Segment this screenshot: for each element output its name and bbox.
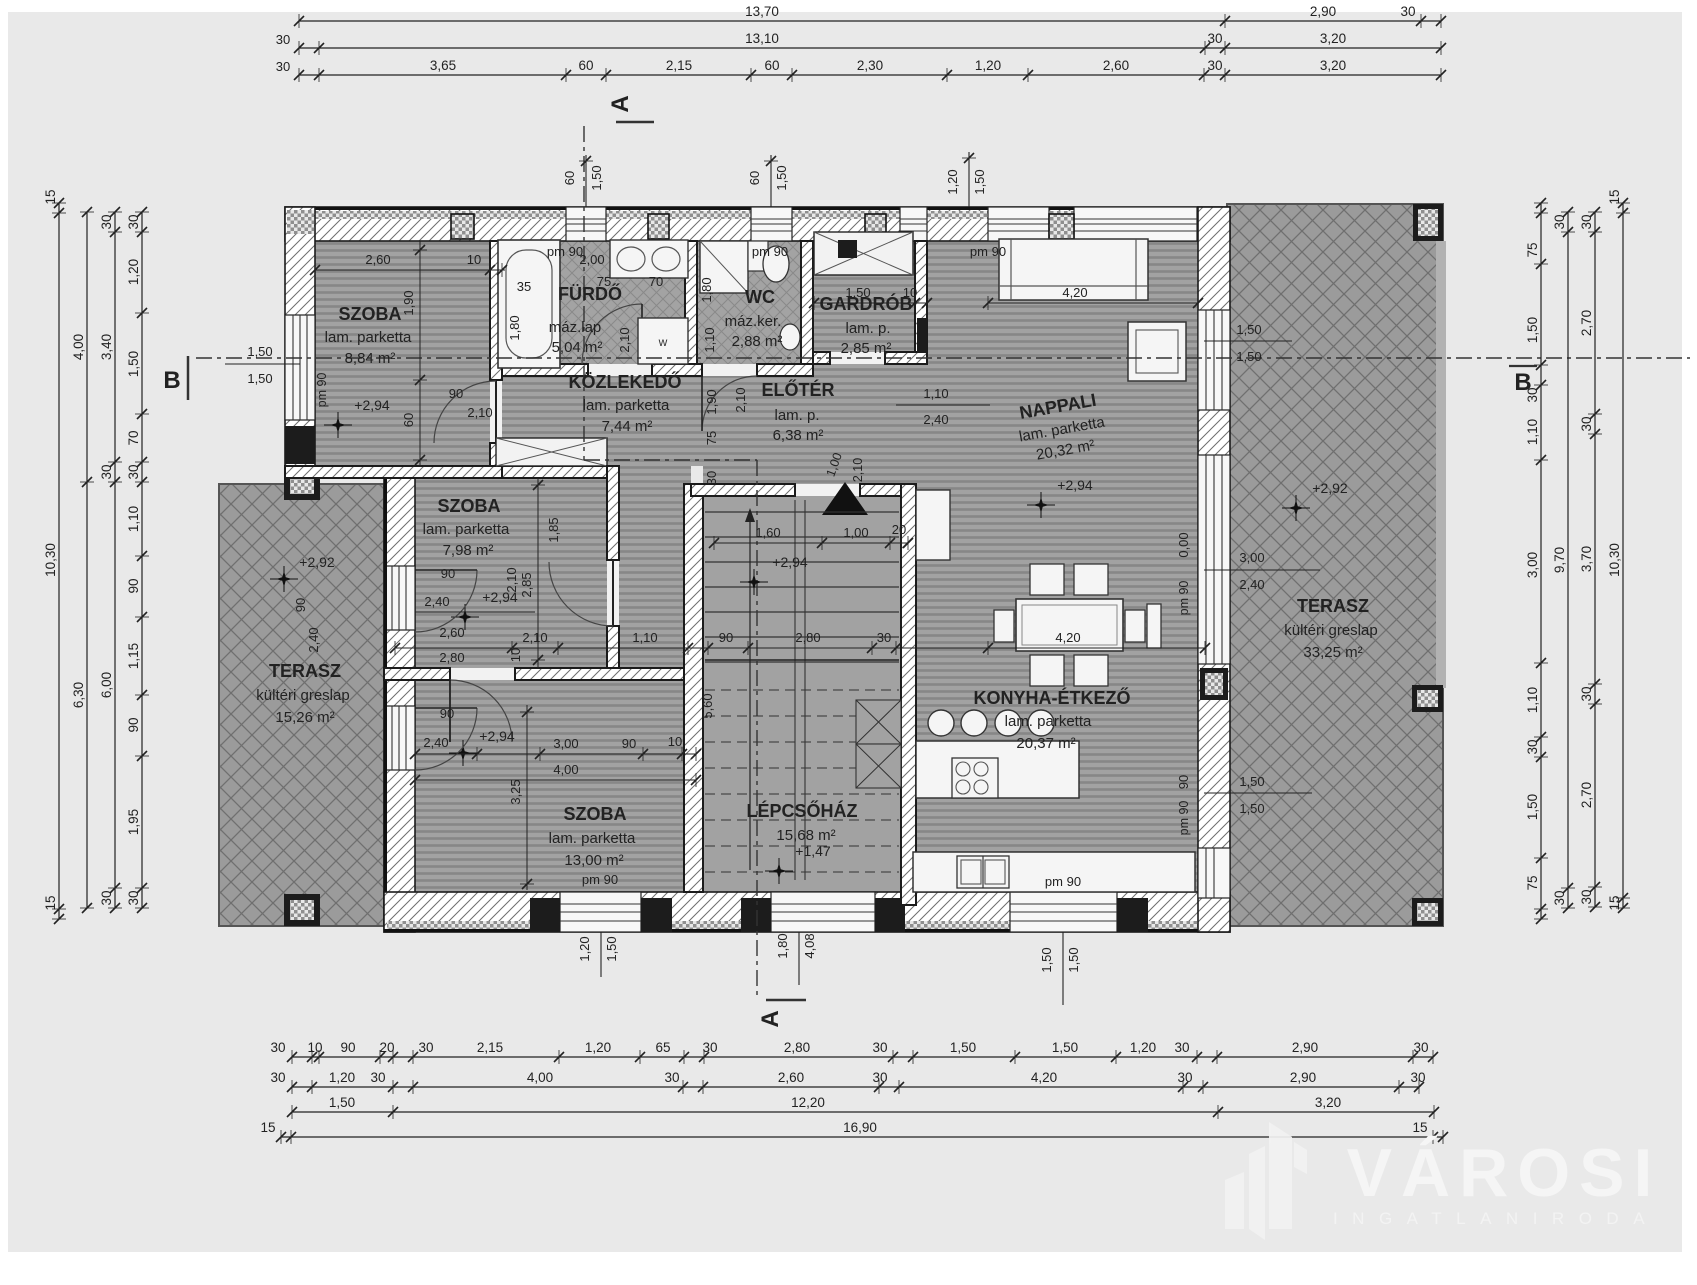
svg-text:75: 75 xyxy=(704,431,719,445)
svg-text:1,50: 1,50 xyxy=(950,1040,976,1055)
svg-text:A: A xyxy=(757,1010,784,1027)
svg-text:20: 20 xyxy=(892,522,906,537)
svg-text:2,15: 2,15 xyxy=(666,58,692,73)
svg-text:10: 10 xyxy=(467,252,481,267)
svg-text:30: 30 xyxy=(1525,739,1540,754)
svg-text:2,40: 2,40 xyxy=(423,735,448,750)
svg-text:6,38 m²: 6,38 m² xyxy=(773,427,824,444)
svg-text:INGATLANIRODA: INGATLANIRODA xyxy=(1333,1209,1659,1228)
svg-text:FÜRDŐ: FÜRDŐ xyxy=(558,283,622,304)
svg-text:pm 90: pm 90 xyxy=(1177,801,1191,836)
svg-text:3,00: 3,00 xyxy=(553,736,578,751)
svg-text:1,20: 1,20 xyxy=(126,259,141,285)
svg-text:15: 15 xyxy=(1607,895,1622,910)
svg-text:10: 10 xyxy=(668,734,682,749)
svg-text:3,00: 3,00 xyxy=(1239,550,1264,565)
svg-text:2,10: 2,10 xyxy=(522,630,547,645)
svg-text:1,50: 1,50 xyxy=(589,165,604,190)
svg-text:1,90: 1,90 xyxy=(704,389,719,414)
svg-text:1,15: 1,15 xyxy=(126,643,141,669)
svg-text:1,20: 1,20 xyxy=(975,58,1001,73)
svg-text:90: 90 xyxy=(1176,775,1191,789)
svg-text:1,50: 1,50 xyxy=(1039,947,1054,972)
svg-text:5,60: 5,60 xyxy=(700,693,715,718)
svg-text:1,80: 1,80 xyxy=(699,277,714,302)
svg-text:70: 70 xyxy=(649,274,663,289)
svg-text:1,80: 1,80 xyxy=(775,933,790,958)
svg-text:1,50: 1,50 xyxy=(1239,801,1264,816)
svg-text:75: 75 xyxy=(1525,875,1540,890)
svg-text:2,70: 2,70 xyxy=(1579,310,1594,336)
svg-text:16,90: 16,90 xyxy=(843,1120,877,1135)
svg-text:1,50: 1,50 xyxy=(1525,317,1540,343)
svg-text:30: 30 xyxy=(1177,1070,1192,1085)
svg-text:1,20: 1,20 xyxy=(577,936,592,961)
svg-text:5,04 m²: 5,04 m² xyxy=(552,339,603,356)
svg-text:1,20: 1,20 xyxy=(945,169,960,194)
svg-text:15: 15 xyxy=(1412,1120,1427,1135)
svg-text:w: w xyxy=(658,335,668,349)
svg-text:3,00: 3,00 xyxy=(1525,552,1540,578)
svg-text:WC: WC xyxy=(745,287,775,307)
svg-text:pm 90: pm 90 xyxy=(752,244,788,259)
svg-text:1,10: 1,10 xyxy=(126,506,141,532)
svg-text:10,30: 10,30 xyxy=(1607,543,1622,577)
svg-text:30: 30 xyxy=(1579,889,1594,904)
svg-text:2,85: 2,85 xyxy=(519,572,534,597)
svg-text:9,70: 9,70 xyxy=(1552,547,1567,573)
svg-text:A: A xyxy=(607,95,634,112)
svg-text:1,50: 1,50 xyxy=(1525,794,1540,820)
svg-text:10,30: 10,30 xyxy=(43,543,58,577)
svg-text:30: 30 xyxy=(1400,4,1415,19)
svg-text:pm 90: pm 90 xyxy=(547,244,583,259)
svg-text:1,10: 1,10 xyxy=(702,327,717,352)
svg-text:4,00: 4,00 xyxy=(553,762,578,777)
svg-text:lam. p.: lam. p. xyxy=(774,407,819,424)
svg-text:20,37 m²: 20,37 m² xyxy=(1016,735,1075,752)
svg-text:8,84 m²: 8,84 m² xyxy=(345,350,396,367)
svg-text:lam. parketta: lam. parketta xyxy=(1005,713,1092,730)
svg-text:+1,47: +1,47 xyxy=(795,843,831,859)
svg-text:90: 90 xyxy=(719,630,733,645)
svg-text:30: 30 xyxy=(877,630,891,645)
svg-text:7,98 m²: 7,98 m² xyxy=(443,542,494,559)
svg-text:2,10: 2,10 xyxy=(504,567,519,592)
svg-text:2,40: 2,40 xyxy=(923,412,948,427)
svg-text:4,20: 4,20 xyxy=(1062,285,1087,300)
svg-text:90: 90 xyxy=(449,386,463,401)
svg-text:2,80: 2,80 xyxy=(439,650,464,665)
svg-text:30: 30 xyxy=(1207,31,1222,46)
svg-text:lam. parketta: lam. parketta xyxy=(423,521,510,538)
svg-text:60: 60 xyxy=(578,58,593,73)
svg-text:lam. parketta: lam. parketta xyxy=(583,397,670,414)
svg-text:máz.lap: máz.lap xyxy=(549,319,602,336)
svg-text:3,70: 3,70 xyxy=(1579,546,1594,572)
svg-text:kültéri greslap: kültéri greslap xyxy=(256,687,349,704)
svg-text:1,50: 1,50 xyxy=(1236,322,1261,337)
svg-text:30: 30 xyxy=(126,890,141,905)
svg-text:3,20: 3,20 xyxy=(1320,31,1346,46)
svg-text:30: 30 xyxy=(1207,58,1222,73)
svg-text:1,80: 1,80 xyxy=(507,315,522,340)
svg-text:90: 90 xyxy=(622,736,636,751)
svg-text:VÁROSI: VÁROSI xyxy=(1347,1135,1662,1211)
svg-text:75: 75 xyxy=(1525,242,1540,257)
svg-text:30: 30 xyxy=(872,1070,887,1085)
svg-text:0,00: 0,00 xyxy=(1176,532,1191,557)
svg-text:30: 30 xyxy=(1413,1040,1428,1055)
svg-text:1,10: 1,10 xyxy=(632,630,657,645)
svg-text:2,90: 2,90 xyxy=(1310,4,1336,19)
svg-text:1,10: 1,10 xyxy=(923,386,948,401)
svg-text:2,40: 2,40 xyxy=(424,594,449,609)
svg-text:1,00: 1,00 xyxy=(843,525,868,540)
svg-text:SZOBA: SZOBA xyxy=(564,804,627,824)
svg-text:90: 90 xyxy=(441,566,455,581)
svg-text:1,50: 1,50 xyxy=(1236,349,1261,364)
svg-text:1,60: 1,60 xyxy=(755,525,780,540)
svg-text:13,10: 13,10 xyxy=(745,31,779,46)
svg-text:1,50: 1,50 xyxy=(774,165,789,190)
svg-text:2,40: 2,40 xyxy=(1239,577,1264,592)
svg-text:70: 70 xyxy=(126,430,141,445)
svg-text:30: 30 xyxy=(1579,686,1594,701)
svg-text:90: 90 xyxy=(293,598,308,612)
svg-text:35: 35 xyxy=(517,279,531,294)
svg-text:1,50: 1,50 xyxy=(972,169,987,194)
svg-text:30: 30 xyxy=(1525,387,1540,402)
svg-text:30: 30 xyxy=(99,214,114,229)
svg-text:1,90: 1,90 xyxy=(401,290,416,315)
svg-text:90: 90 xyxy=(440,706,454,721)
svg-text:12,20: 12,20 xyxy=(791,1095,825,1110)
svg-text:10: 10 xyxy=(508,648,523,662)
svg-text:15,68 m²: 15,68 m² xyxy=(776,827,835,844)
svg-text:LÉPCSŐHÁZ: LÉPCSŐHÁZ xyxy=(746,800,857,821)
svg-text:pm 90: pm 90 xyxy=(1177,581,1191,616)
svg-text:1,50: 1,50 xyxy=(1052,1040,1078,1055)
svg-text:2,40: 2,40 xyxy=(306,627,321,652)
svg-text:pm 90: pm 90 xyxy=(970,244,1006,259)
svg-text:60: 60 xyxy=(764,58,779,73)
svg-text:1,10: 1,10 xyxy=(1525,419,1540,445)
svg-text:4,00: 4,00 xyxy=(71,334,86,360)
svg-text:33,25 m²: 33,25 m² xyxy=(1303,644,1362,661)
svg-text:30: 30 xyxy=(664,1070,679,1085)
svg-text:90: 90 xyxy=(126,717,141,732)
svg-text:máz.ker.: máz.ker. xyxy=(725,313,782,330)
svg-text:2,15: 2,15 xyxy=(477,1040,503,1055)
svg-text:30: 30 xyxy=(99,890,114,905)
svg-text:30: 30 xyxy=(418,1040,433,1055)
svg-text:2,80: 2,80 xyxy=(784,1040,810,1055)
svg-text:2,85 m²: 2,85 m² xyxy=(841,340,892,357)
svg-text:1,10: 1,10 xyxy=(1525,687,1540,713)
svg-text:10: 10 xyxy=(903,285,917,300)
svg-text:3,25: 3,25 xyxy=(508,779,523,804)
svg-text:1,20: 1,20 xyxy=(329,1070,355,1085)
svg-text:15: 15 xyxy=(43,895,58,910)
svg-text:1,20: 1,20 xyxy=(1130,1040,1156,1055)
svg-text:60: 60 xyxy=(562,171,577,185)
svg-text:2,90: 2,90 xyxy=(1290,1070,1316,1085)
svg-text:2,10: 2,10 xyxy=(733,387,748,412)
svg-text:4,08: 4,08 xyxy=(802,933,817,958)
svg-text:pm 90: pm 90 xyxy=(315,373,329,408)
svg-text:60: 60 xyxy=(747,171,762,185)
svg-text:30: 30 xyxy=(370,1070,385,1085)
svg-text:2,70: 2,70 xyxy=(1579,782,1594,808)
svg-text:+2,94: +2,94 xyxy=(772,554,808,570)
svg-text:SZOBA: SZOBA xyxy=(339,304,402,324)
svg-text:1,50: 1,50 xyxy=(247,371,272,386)
svg-text:lam. p.: lam. p. xyxy=(845,320,890,337)
svg-text:90: 90 xyxy=(340,1040,355,1055)
svg-text:15: 15 xyxy=(43,189,58,204)
svg-text:30: 30 xyxy=(872,1040,887,1055)
svg-text:TERASZ: TERASZ xyxy=(269,661,341,681)
svg-text:2,30: 2,30 xyxy=(857,58,883,73)
svg-text:+2,94: +2,94 xyxy=(354,397,390,413)
svg-text:2,60: 2,60 xyxy=(365,252,390,267)
svg-text:+2,92: +2,92 xyxy=(1312,480,1348,496)
svg-text:3,20: 3,20 xyxy=(1320,58,1346,73)
svg-text:30: 30 xyxy=(1579,416,1594,431)
svg-text:30: 30 xyxy=(1579,214,1594,229)
svg-text:30: 30 xyxy=(126,214,141,229)
svg-text:+2,94: +2,94 xyxy=(1057,477,1093,493)
svg-text:30: 30 xyxy=(99,464,114,479)
svg-text:30: 30 xyxy=(276,32,290,47)
svg-text:lam. parketta: lam. parketta xyxy=(549,830,636,847)
svg-text:15,26 m²: 15,26 m² xyxy=(275,709,334,726)
svg-text:2,10: 2,10 xyxy=(617,327,632,352)
svg-text:pm 90: pm 90 xyxy=(582,872,618,887)
svg-text:65: 65 xyxy=(655,1040,670,1055)
svg-text:6,00: 6,00 xyxy=(99,672,114,698)
svg-text:2,10: 2,10 xyxy=(467,405,492,420)
svg-text:2,60: 2,60 xyxy=(778,1070,804,1085)
svg-text:30: 30 xyxy=(270,1070,285,1085)
svg-text:B: B xyxy=(163,367,180,394)
svg-text:30: 30 xyxy=(276,59,290,74)
svg-text:pm 90: pm 90 xyxy=(1045,874,1081,889)
svg-text:30: 30 xyxy=(1552,890,1567,905)
svg-text:2,80: 2,80 xyxy=(795,630,820,645)
svg-text:20: 20 xyxy=(379,1040,394,1055)
svg-text:75: 75 xyxy=(597,274,611,289)
svg-text:30: 30 xyxy=(126,464,141,479)
svg-text:15: 15 xyxy=(1607,189,1622,204)
svg-text:2,88 m²: 2,88 m² xyxy=(732,333,783,350)
svg-text:1,50: 1,50 xyxy=(1239,774,1264,789)
svg-text:+2,94: +2,94 xyxy=(479,728,515,744)
svg-text:+2,92: +2,92 xyxy=(299,554,335,570)
svg-text:3,40: 3,40 xyxy=(99,334,114,360)
svg-text:13,70: 13,70 xyxy=(745,4,779,19)
svg-text:4,00: 4,00 xyxy=(527,1070,553,1085)
svg-text:1,95: 1,95 xyxy=(126,809,141,835)
svg-text:3,20: 3,20 xyxy=(1315,1095,1341,1110)
svg-text:lam. parketta: lam. parketta xyxy=(325,329,412,346)
svg-text:1,85: 1,85 xyxy=(546,517,561,542)
svg-text:6,30: 6,30 xyxy=(71,682,86,708)
svg-text:KÖZLEKEDŐ: KÖZLEKEDŐ xyxy=(568,371,681,392)
svg-text:2,60: 2,60 xyxy=(1103,58,1129,73)
svg-text:1,50: 1,50 xyxy=(845,285,870,300)
svg-text:2,90: 2,90 xyxy=(1292,1040,1318,1055)
svg-text:1,50: 1,50 xyxy=(1066,947,1081,972)
svg-text:4,20: 4,20 xyxy=(1055,630,1080,645)
svg-text:30: 30 xyxy=(702,1040,717,1055)
svg-text:7,44 m²: 7,44 m² xyxy=(602,418,653,435)
svg-text:1,50: 1,50 xyxy=(329,1095,355,1110)
svg-text:30: 30 xyxy=(704,471,719,485)
svg-text:1,50: 1,50 xyxy=(247,344,272,359)
svg-text:1,50: 1,50 xyxy=(126,351,141,377)
svg-text:2,60: 2,60 xyxy=(439,625,464,640)
svg-text:60: 60 xyxy=(401,413,416,427)
svg-text:10: 10 xyxy=(307,1040,322,1055)
svg-text:3,65: 3,65 xyxy=(430,58,456,73)
svg-text:1,50: 1,50 xyxy=(604,936,619,961)
svg-text:kültéri greslap: kültéri greslap xyxy=(1284,622,1377,639)
svg-text:30: 30 xyxy=(1174,1040,1189,1055)
svg-text:1,20: 1,20 xyxy=(585,1040,611,1055)
svg-text:30: 30 xyxy=(1552,214,1567,229)
svg-text:TERASZ: TERASZ xyxy=(1297,596,1369,616)
svg-text:SZOBA: SZOBA xyxy=(438,496,501,516)
svg-text:2,00: 2,00 xyxy=(579,252,604,267)
svg-text:30: 30 xyxy=(270,1040,285,1055)
svg-text:ELŐTÉR: ELŐTÉR xyxy=(761,379,834,400)
svg-text:15: 15 xyxy=(260,1120,275,1135)
svg-text:30: 30 xyxy=(1410,1070,1425,1085)
svg-text:KONYHA-ÉTKEZŐ: KONYHA-ÉTKEZŐ xyxy=(974,687,1131,708)
svg-text:90: 90 xyxy=(126,578,141,593)
svg-text:13,00 m²: 13,00 m² xyxy=(564,852,623,869)
svg-text:4,20: 4,20 xyxy=(1031,1070,1057,1085)
svg-text:2,10: 2,10 xyxy=(851,458,865,482)
